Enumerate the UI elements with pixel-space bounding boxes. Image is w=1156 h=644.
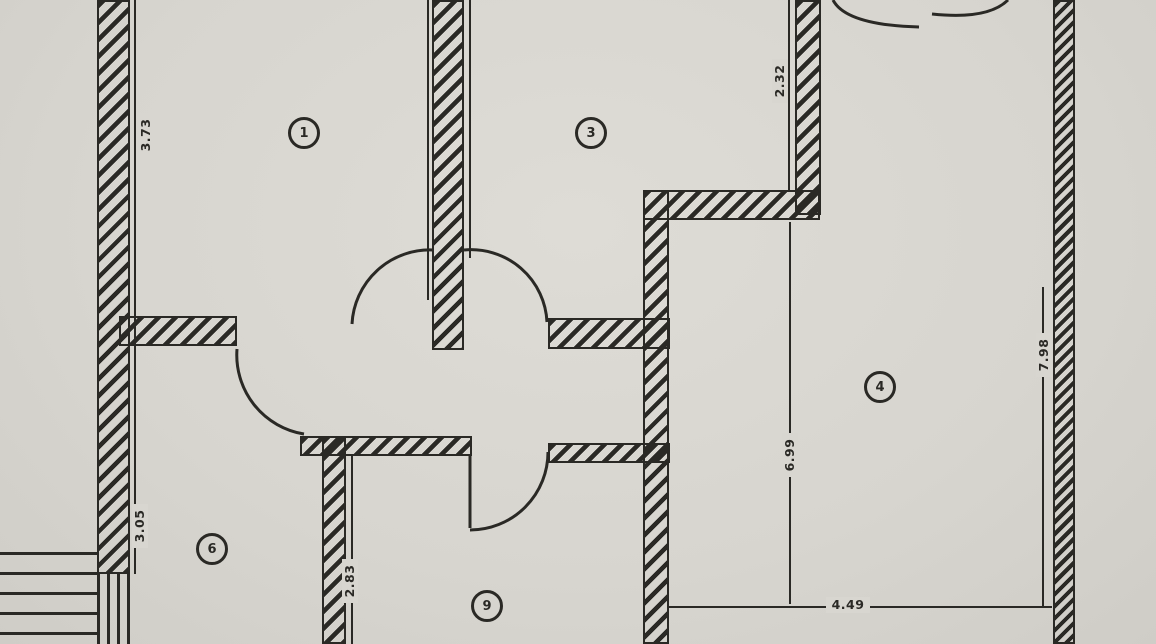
wall-interior-vertical [643,190,669,644]
wall-corridor-left [119,316,237,346]
wall-left-exterior [97,0,130,574]
wall-right-center-top [795,0,821,215]
face-line-center-right [469,0,471,258]
face-line-center-left [427,0,429,300]
room-label-9: 9 [471,590,503,622]
room-label-1: 1 [288,117,320,149]
double-door-arc-right [932,0,1008,15]
dimension-top-right: 2.32 [772,59,788,103]
wall-center-top [432,0,464,350]
room-number: 3 [586,126,595,141]
wall-corridor-right [548,318,670,349]
wall-room6-right [322,436,346,644]
door-arc-corridor-right-of-wall [464,250,547,322]
room-label-4: 4 [864,371,896,403]
face-line-room6 [351,456,353,644]
dimension-center-vertical: 6.99 [782,433,798,477]
room-number: 4 [875,380,884,395]
stairs-bottom-left [0,552,97,644]
double-door-arc-left [833,0,919,27]
dimension-room9-left: 2.83 [342,559,358,603]
wall-right-exterior [1053,0,1075,644]
dimension-line-vertical [789,222,791,604]
window-left-wall [97,574,130,644]
room-number: 6 [207,542,216,557]
room-label-6: 6 [196,533,228,565]
room-number: 9 [482,599,491,614]
room-number: 1 [299,126,308,141]
door-arc-corridor-to-room6 [237,349,304,434]
wall-room9-top-right [548,443,670,463]
door-arc-room9 [470,452,548,530]
dimension-right-wall: 7.98 [1036,333,1052,377]
dimension-bottom-horizontal: 4.49 [826,597,870,613]
dimension-left-upper: 3.73 [138,113,154,157]
face-line-left-wall [134,0,136,574]
wall-step-horizontal [643,190,820,220]
dimension-left-lower: 3.05 [132,504,148,548]
floor-plan-canvas: 1 3 4 6 9 3.73 3.05 2.32 6.99 7.98 2.83 … [0,0,1156,644]
door-arc-corridor-left-of-wall [352,250,433,324]
face-line-right-center [788,0,790,192]
room-label-3: 3 [575,117,607,149]
